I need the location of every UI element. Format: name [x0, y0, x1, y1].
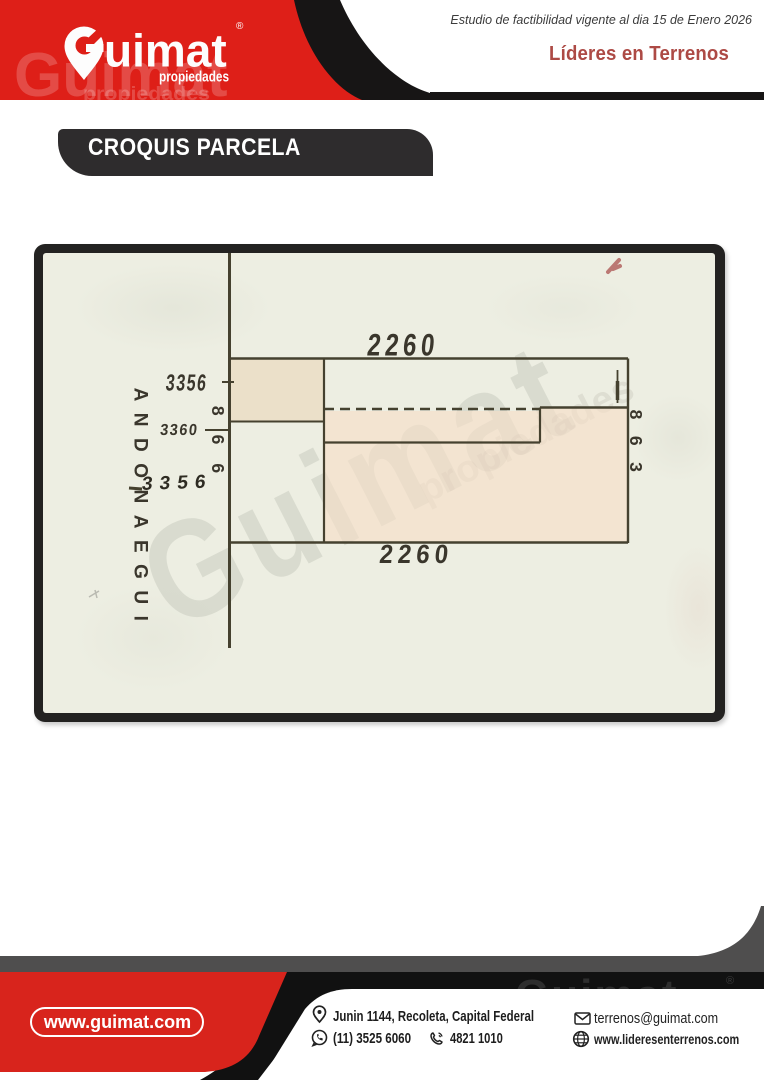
svg-text:propiedades: propiedades [83, 84, 210, 105]
svg-text:propiedades: propiedades [159, 70, 229, 86]
svg-text:®: ® [726, 975, 734, 987]
